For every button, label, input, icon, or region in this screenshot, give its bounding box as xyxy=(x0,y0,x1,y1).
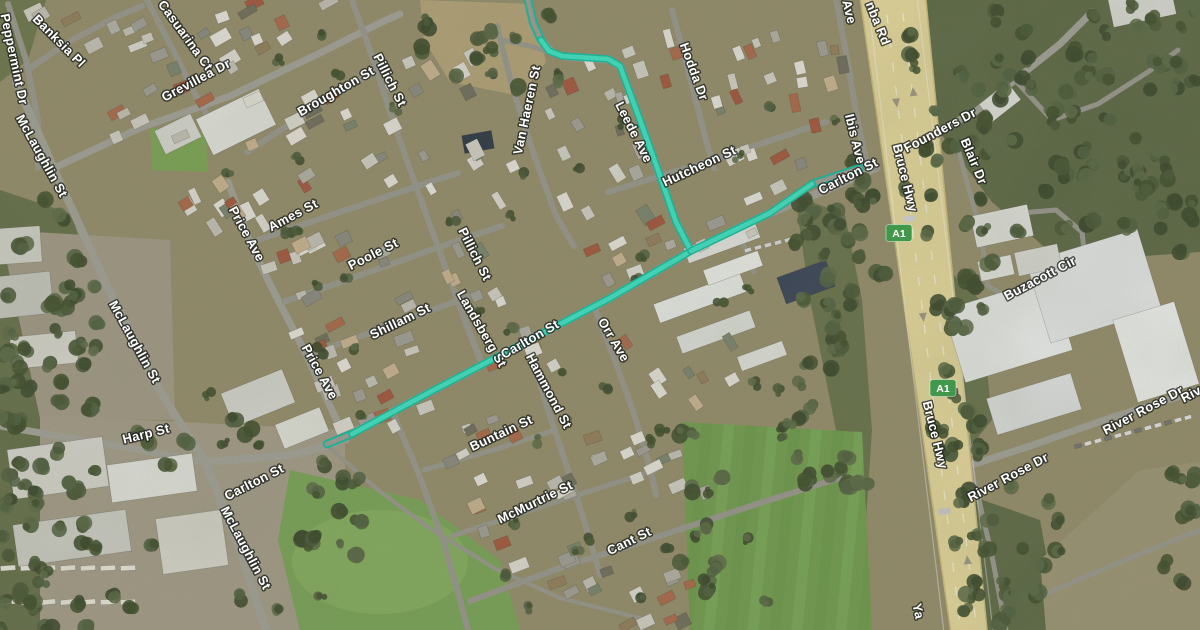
map-viewport[interactable]: Peppermint DrBanksia PlCasuarina CtGrevi… xyxy=(0,0,1200,630)
highway-shield-a1: A1 xyxy=(930,380,956,397)
svg-text:A1: A1 xyxy=(892,228,906,240)
satellite-imagery: Peppermint DrBanksia PlCasuarina CtGrevi… xyxy=(0,0,1200,630)
highway-shield-a1: A1 xyxy=(886,225,912,242)
svg-text:A1: A1 xyxy=(936,383,950,395)
